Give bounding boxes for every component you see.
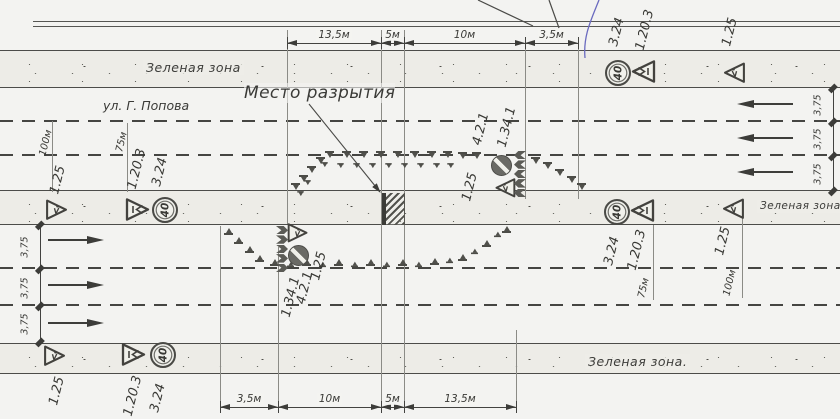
dimension-segment: 13,5м (404, 407, 516, 408)
traffic-cone-marker (458, 253, 467, 261)
traffic-cone-marker (577, 183, 586, 191)
dimension-arrowhead-right (506, 404, 516, 410)
extension-line (287, 30, 288, 224)
dimension-value: 13,5м (442, 393, 477, 405)
sign-3.24-speed-limit-40: 40 (605, 60, 631, 86)
chevron-mark (276, 264, 288, 272)
dimension-value: 5м (383, 393, 402, 405)
dimension-arrowhead-right (394, 404, 404, 410)
traffic-direction-arrow (737, 168, 793, 176)
traffic-cone-marker (472, 152, 481, 160)
dimension-segment: 13,5м (287, 43, 381, 44)
sign-code-label: 1.20.3 (633, 8, 658, 52)
traffic-direction-arrow (48, 236, 104, 244)
lane-width-value: 3,75 (20, 313, 31, 334)
speed-limit-value: 40 (157, 348, 169, 363)
traffic-cone-marker (502, 225, 511, 233)
arrow-head (87, 281, 104, 289)
dimension-arrowhead-right (268, 404, 278, 410)
sign-code-label: 1.20.3 (625, 228, 650, 272)
dimension-arrowhead-right (371, 404, 381, 410)
sign-code-label: 100м (721, 269, 738, 298)
dimension-arrowhead-left (381, 40, 391, 46)
lane-line-lower-2 (0, 304, 840, 306)
lane-line-upper-1 (0, 120, 840, 122)
dimension-value: 10м (317, 393, 342, 405)
excavation-site-label: Место разрытия (244, 83, 395, 103)
traffic-cone-marker (494, 231, 501, 237)
traffic-cone-marker (398, 258, 407, 266)
extension-line (653, 225, 654, 300)
traffic-direction-arrow (737, 134, 793, 142)
speed-limit-value: 40 (612, 66, 624, 81)
dimension-arrowhead-left (404, 404, 414, 410)
traffic-cone-marker (245, 245, 254, 253)
dimension-segment: 10м (278, 407, 381, 408)
sidewalk-edge-double-line (33, 21, 840, 27)
traffic-cone-marker (297, 191, 303, 197)
traffic-cone-marker (471, 248, 478, 254)
sign-1.25-roadworks (43, 344, 66, 370)
lane-width-value: 3,75 (20, 277, 31, 298)
traffic-cone-marker (482, 239, 491, 247)
lane-width-dim-arrow (35, 301, 44, 310)
dimension-value: 3,5м (537, 29, 566, 41)
lane-width-value: 3,75 (813, 163, 824, 184)
chevron-mark (514, 179, 526, 187)
traffic-direction-arrow (48, 319, 104, 327)
chevron-mark (276, 226, 288, 234)
traffic-cone-marker (234, 236, 243, 244)
sign-code-label: 3.24 (149, 156, 171, 188)
lane-width-dim-line (833, 88, 834, 191)
traffic-cone-marker (446, 257, 453, 263)
lane-width-value: 3,75 (813, 128, 824, 149)
dimension-segment: 5м (381, 407, 404, 408)
sign-1.20.3-road-narrows (629, 198, 655, 227)
green-zone-median-label: Зеленая зона (757, 200, 840, 213)
excavation-leader-line (309, 104, 380, 192)
traffic-cone-marker (543, 162, 552, 170)
excavation-pit-hatched (382, 193, 405, 225)
traffic-cone-marker (359, 151, 368, 159)
traffic-cone-marker (531, 157, 540, 165)
lane-line-lower-1 (0, 267, 840, 269)
traffic-cone-marker (443, 151, 452, 159)
chevron-mark (276, 245, 288, 253)
sign-1.34.1-chevrons (514, 151, 526, 197)
arrow-head (737, 134, 754, 142)
dimension-tick (404, 401, 405, 413)
arrow-head (87, 319, 104, 327)
dimension-tick (381, 401, 382, 413)
dimension-tick (278, 401, 279, 413)
green-zone-bottom-label: Зеленая зона. (585, 354, 690, 369)
traffic-cone-marker (417, 163, 423, 169)
sign-4.2.1-pass-this-side (491, 155, 512, 176)
lane-width-value: 3,75 (20, 236, 31, 257)
green-zone-top-label: Зеленая зона (143, 60, 244, 75)
traffic-cone-marker (415, 261, 422, 267)
traffic-cone-marker (567, 176, 576, 184)
dimension-segment: 3,5м (525, 43, 578, 44)
traffic-cone-marker (366, 258, 375, 266)
traffic-cone-marker (458, 152, 467, 160)
arrow-head (737, 100, 754, 108)
sign-1.25-roadworks (494, 177, 516, 202)
traffic-cone-marker (342, 151, 351, 159)
sign-3.24-speed-limit-40: 40 (152, 197, 178, 223)
extension-line (578, 46, 579, 199)
street-name-label: ул. Г. Попова (103, 98, 189, 113)
sign-1.20.3-road-narrows (630, 59, 656, 88)
traffic-cone-marker (385, 163, 391, 169)
lane-width-dim-arrow (35, 264, 44, 273)
arrow-head (87, 236, 104, 244)
sign-code-label: 1.25 (712, 225, 734, 257)
traffic-cone-marker (393, 151, 402, 159)
traffic-cone-marker (369, 163, 375, 169)
extension-line (516, 330, 517, 407)
traffic-direction-arrow (737, 100, 793, 108)
traffic-cone-marker (334, 258, 343, 266)
sign-1.20.3-road-narrows (125, 197, 151, 226)
dimension-arrowhead-left (220, 404, 230, 410)
traffic-cone-marker (351, 261, 358, 267)
traffic-cone-marker (337, 163, 343, 169)
arrow-head (737, 168, 754, 176)
traffic-cone-marker (321, 162, 327, 168)
sign-code-label: 1.20.3 (121, 374, 146, 418)
sign-code-label: 1.25 (46, 375, 68, 407)
sign-code-label: 3.24 (147, 382, 169, 414)
dimension-value: 5м (383, 29, 402, 41)
traffic-cone-marker (401, 163, 407, 169)
sign-code-label: 75м (636, 277, 652, 299)
dimension-segment: 10м (404, 43, 525, 44)
traffic-cone-marker (224, 227, 233, 235)
dimension-tick (287, 37, 288, 49)
dimension-arrowhead-left (381, 404, 391, 410)
sign-1.25-roadworks (722, 61, 745, 87)
traffic-cone-marker (430, 257, 439, 265)
chevron-mark (276, 254, 288, 262)
chevron-mark (514, 160, 526, 168)
dimension-segment: 3,5м (220, 407, 278, 408)
traffic-cone-marker (325, 151, 334, 159)
dimension-tick (516, 401, 517, 413)
chevron-mark (514, 170, 526, 178)
dimension-tick (578, 37, 579, 49)
speed-limit-value: 40 (159, 203, 171, 218)
traffic-cone-marker (353, 163, 359, 169)
dimension-value: 13,5м (316, 29, 351, 41)
lane-width-value: 3,75 (813, 94, 824, 115)
dimension-segment: 5м (381, 43, 404, 44)
sign-1.25-roadworks (721, 197, 744, 223)
dimension-tick (404, 37, 405, 49)
traffic-cone-marker (383, 261, 390, 267)
sign-1.25-roadworks (287, 222, 309, 247)
traffic-cone-marker (555, 169, 564, 177)
traffic-cone-marker (447, 163, 453, 169)
sign-code-label: 3.24 (601, 235, 623, 267)
extension-line (220, 226, 221, 407)
speed-limit-value: 40 (611, 205, 623, 220)
dimension-arrowhead-left (404, 40, 414, 46)
dimension-arrowhead-right (394, 40, 404, 46)
sign-code-label: 1.34.1 (495, 105, 520, 149)
sign-1.20.3-road-narrows (121, 342, 147, 371)
lane-width-dim-line (40, 225, 41, 342)
dimension-arrowhead-left (525, 40, 535, 46)
traffic-cone-marker (410, 151, 419, 159)
lane-width-dim-arrow (828, 151, 837, 160)
dimension-value: 3,5м (235, 393, 264, 405)
chevron-mark (514, 189, 526, 197)
sign-code-label: 4.2.1 (470, 111, 493, 147)
lane-line-upper-2 (0, 154, 840, 156)
dimension-arrowhead-right (568, 40, 578, 46)
traffic-direction-arrow (48, 281, 104, 289)
dimension-tick (220, 401, 221, 413)
chevron-mark (276, 235, 288, 243)
dimension-arrowhead-right (515, 40, 525, 46)
traffic-cone-marker (433, 163, 439, 169)
traffic-cone-marker (427, 151, 436, 159)
dimension-arrowhead-left (287, 40, 297, 46)
dimension-tick (381, 37, 382, 49)
traffic-cone-marker (255, 254, 264, 262)
green-zone-band-top: Зеленая зона (0, 50, 840, 88)
dimension-value: 10м (452, 29, 477, 41)
extension-line (742, 217, 743, 298)
sign-1.34.1-chevrons (276, 226, 288, 272)
dimension-arrowhead-left (278, 404, 288, 410)
lane-width-dim-arrow (828, 117, 837, 126)
dimension-tick (525, 37, 526, 49)
chevron-mark (514, 151, 526, 159)
traffic-management-site-plan: Зеленая зона Зеленая зона Зеленая зона. … (0, 0, 840, 419)
dimension-arrowhead-right (371, 40, 381, 46)
sign-4.2.1-pass-this-side (288, 245, 309, 266)
traffic-cone-marker (304, 180, 310, 186)
sign-3.24-speed-limit-40: 40 (604, 199, 630, 225)
traffic-cone-marker (291, 183, 300, 191)
traffic-cone-marker (376, 151, 385, 159)
sign-1.25-roadworks (45, 198, 68, 224)
sign-3.24-speed-limit-40: 40 (150, 342, 176, 368)
traffic-cone-marker (307, 166, 316, 174)
